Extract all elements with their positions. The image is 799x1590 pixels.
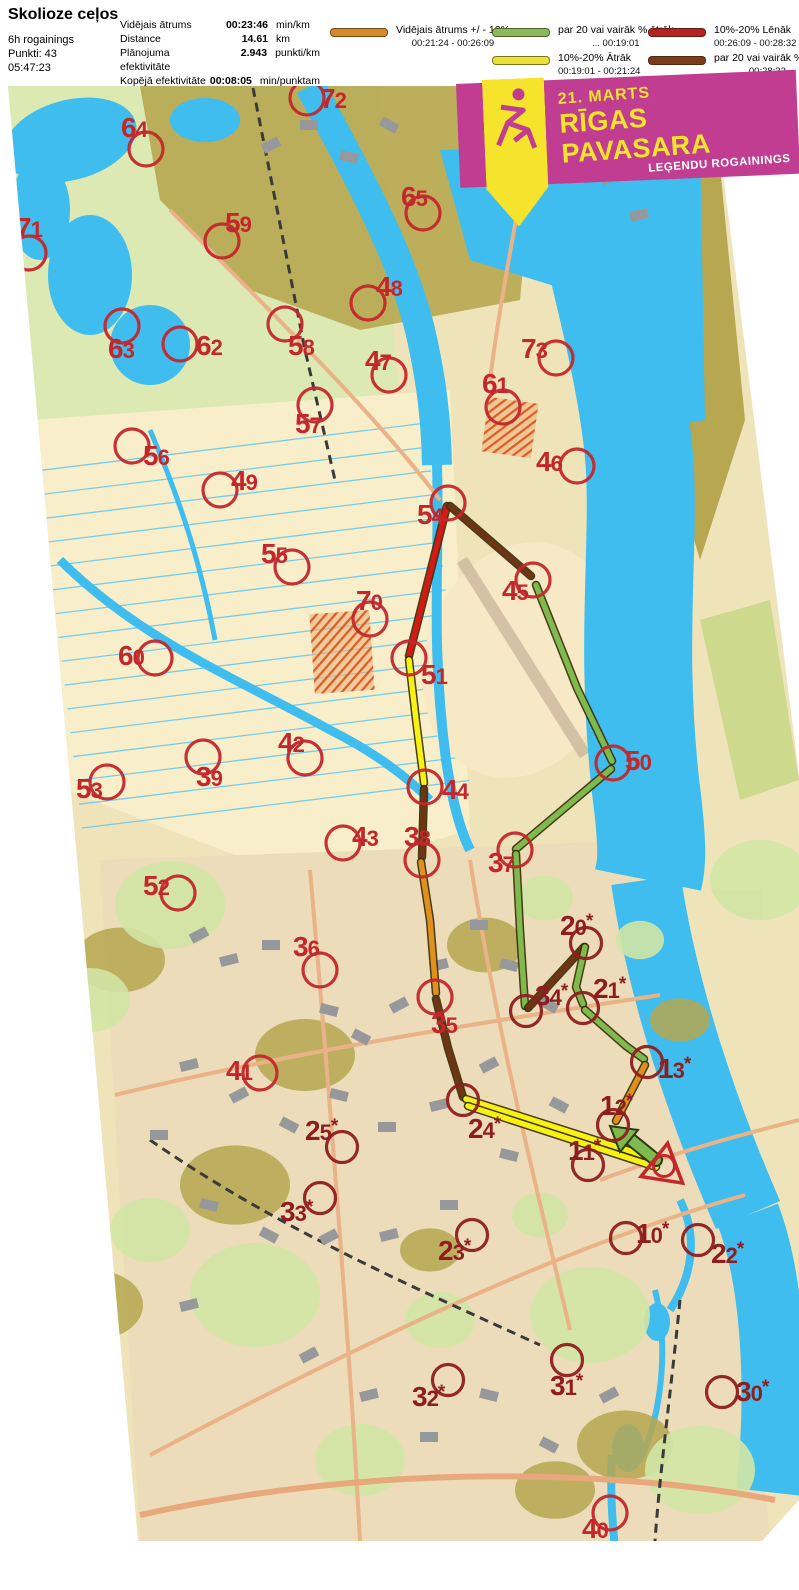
control-number: 73: [521, 333, 548, 364]
stat-label: Distance: [120, 32, 222, 46]
stat-row: Kopējā efektivitāte 00:08:05 min/punktam: [120, 74, 320, 88]
page-title: Skolioze ceļos: [8, 6, 118, 24]
total-time: 05:47:23: [8, 61, 74, 75]
control-number: 40: [582, 1513, 609, 1544]
control-number: 60: [118, 640, 145, 671]
banner-text: 21. MARTS RĪGAS PAVASARA LEĢENDU ROGAINI…: [557, 75, 791, 181]
result-meta: 6h rogainings Punkti: 43 05:47:23: [8, 33, 74, 75]
map-image: 7264715965486362584773615756494654455570…: [0, 0, 799, 1590]
control-number: 65: [401, 181, 428, 212]
stat-unit: min/punktam: [260, 74, 320, 88]
control-number: 41: [226, 1055, 253, 1086]
stats-table: Vidējais ātrums 00:23:46 min/km Distance…: [120, 18, 320, 88]
control-number: 37: [488, 847, 515, 878]
control-number: 45: [502, 575, 529, 606]
stat-label: Kopējā efektivitāte: [120, 74, 210, 88]
legend-range: 00:26:09 - 00:28:32: [714, 38, 796, 50]
control-number: 55: [261, 538, 288, 569]
control-number: 52: [143, 870, 170, 901]
control-number: 71: [16, 212, 43, 243]
stat-value: 14.61: [222, 32, 268, 46]
legend-line-swatch: [648, 56, 706, 65]
control-number: 70: [356, 585, 383, 616]
control-number: 49: [231, 465, 258, 496]
control-number: 47: [365, 345, 392, 376]
map-terrain: 7264715965486362584773615756494654455570…: [0, 80, 799, 1550]
control-number: 56: [143, 440, 170, 471]
stat-unit: punkti/km: [275, 46, 320, 74]
control-number: 54: [417, 499, 445, 530]
control-number: 72: [320, 83, 347, 114]
stat-value: 00:23:46: [222, 18, 268, 32]
control-number: 43: [352, 821, 379, 852]
legend-line-swatch: [492, 28, 550, 37]
control-number: 38: [404, 821, 431, 852]
screenshot-root: { "header": { "title": "Skolioze ceļos",…: [0, 0, 799, 1590]
stat-unit: min/km: [276, 18, 310, 32]
control-number: 48: [376, 271, 403, 302]
points-total: Punkti: 43: [8, 47, 74, 61]
stat-row: Distance 14.61 km: [120, 32, 320, 46]
control-number: 44: [442, 774, 470, 805]
stat-value: 2.943: [221, 46, 267, 74]
stat-row: Plānojuma efektivitāte 2.943 punkti/km: [120, 46, 320, 74]
control-number: 39: [196, 761, 223, 792]
legend-line-swatch: [492, 56, 550, 65]
control-number: 58: [288, 330, 315, 361]
control-number: 61: [482, 368, 509, 399]
stat-unit: km: [276, 32, 290, 46]
control-number: 50: [625, 745, 652, 776]
legend-line-swatch: [648, 28, 706, 37]
control-number: 35: [431, 1008, 458, 1039]
runner-icon: [482, 77, 548, 180]
event-banner: 21. MARTS RĪGAS PAVASARA LEĢENDU ROGAINI…: [456, 70, 799, 188]
control-number: 46: [536, 446, 563, 477]
legend-item-average: Vidējais ātrums +/ - 10% 00:21:24 - 00:2…: [330, 24, 510, 50]
stat-row: Vidējais ātrums 00:23:46 min/km: [120, 18, 320, 32]
legend-item-fast10: 10%-20% Ātrāk 00:19:01 - 00:21:24: [492, 52, 640, 78]
legend-line-swatch: [330, 28, 388, 37]
control-number: 42: [278, 727, 305, 758]
stat-label: Plānojuma efektivitāte: [120, 46, 221, 74]
stat-label: Vidējais ātrums: [120, 18, 222, 32]
event-format: 6h rogainings: [8, 33, 74, 47]
legend-label: 10%-20% Lēnāk: [714, 24, 791, 36]
control-number: 36: [293, 931, 320, 962]
legend-item-slow10: 10%-20% Lēnāk 00:26:09 - 00:28:32: [648, 24, 796, 50]
control-number: 51: [421, 659, 448, 690]
legend-label: par 20 vai vairāk % lēnāk: [714, 52, 799, 64]
control-number: 57: [295, 408, 322, 439]
control-number: 63: [108, 333, 135, 364]
control-number: 59: [225, 207, 252, 238]
control-number: 64: [121, 112, 149, 143]
legend-label: 10%-20% Ātrāk: [558, 52, 631, 64]
control-number: 62: [196, 330, 223, 361]
legend-item-fast20: par 20 vai vairāk % ātrāk ... 00:19:01: [492, 24, 674, 50]
stat-value: 00:08:05: [210, 74, 252, 88]
control-number: 53: [76, 773, 103, 804]
